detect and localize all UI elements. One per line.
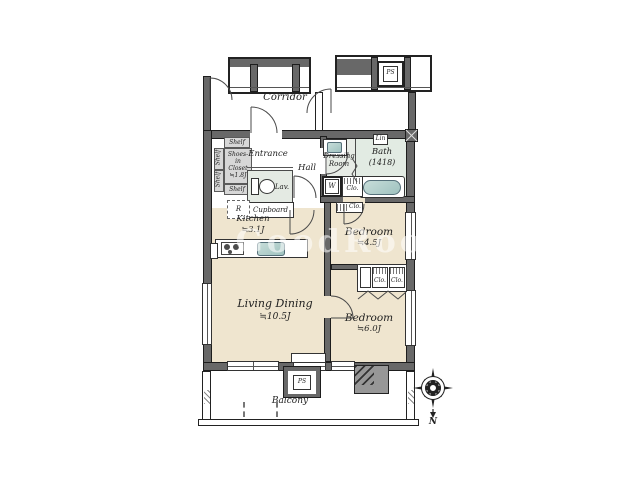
- watermark: GoodRooM: [225, 222, 475, 264]
- corner-x-icon: [406, 130, 417, 141]
- compass-icon: [413, 368, 453, 418]
- door-arcs: [210, 78, 406, 318]
- floor-plan: PS Corridor Shelf Shelf Shelf Shoes-in C…: [0, 0, 640, 480]
